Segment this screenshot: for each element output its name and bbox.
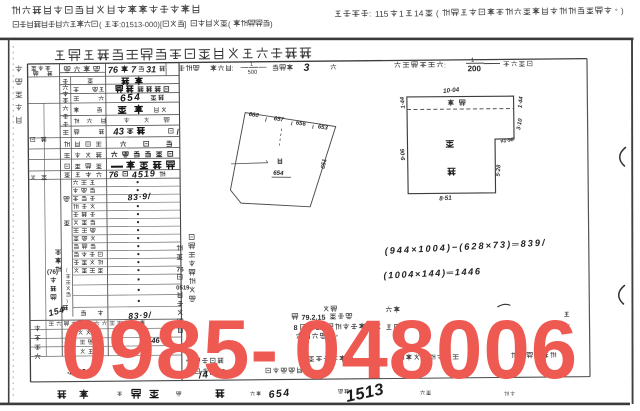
svg-text:4519: 4519 <box>130 168 156 180</box>
svg-text::: : <box>369 9 371 18</box>
svg-text::: : <box>232 66 234 73</box>
svg-text:5·28: 5·28 <box>496 164 503 177</box>
svg-text:76: 76 <box>108 169 118 180</box>
svg-text:0519: 0519 <box>176 285 190 291</box>
svg-text:048006: 048006 <box>294 302 578 396</box>
svg-text:31: 31 <box>146 64 156 74</box>
svg-text:°: ° <box>615 8 618 16</box>
svg-text:): ) <box>270 20 273 29</box>
svg-text:14: 14 <box>414 8 424 18</box>
svg-text:(: ( <box>99 20 102 29</box>
svg-text:1: 1 <box>399 9 404 19</box>
svg-text:43: 43 <box>112 126 125 138</box>
svg-text:]: ] <box>184 20 186 29</box>
svg-text:(: ( <box>436 9 439 18</box>
svg-text::01513-000)[: :01513-000)[ <box>119 20 163 29</box>
svg-text:1·44: 1·44 <box>400 96 407 109</box>
svg-text:76: 76 <box>108 65 120 76</box>
svg-text:200: 200 <box>468 64 482 73</box>
svg-text:83·9/: 83·9/ <box>127 191 152 203</box>
svg-text:76: 76 <box>176 267 184 274</box>
svg-text:(: ( <box>228 20 231 29</box>
svg-text:115: 115 <box>375 9 389 19</box>
svg-text:8·51: 8·51 <box>439 195 453 203</box>
svg-text:(76): (76) <box>47 269 58 276</box>
svg-text:0985-: 0985- <box>61 302 279 396</box>
svg-text:654: 654 <box>273 170 284 177</box>
svg-text:654: 654 <box>120 92 142 105</box>
svg-text:3: 3 <box>303 62 309 74</box>
svg-text:): ) <box>621 6 624 15</box>
svg-text:9·06: 9·06 <box>400 148 407 161</box>
svg-text::: : <box>444 62 446 69</box>
svg-text:500: 500 <box>248 70 258 76</box>
